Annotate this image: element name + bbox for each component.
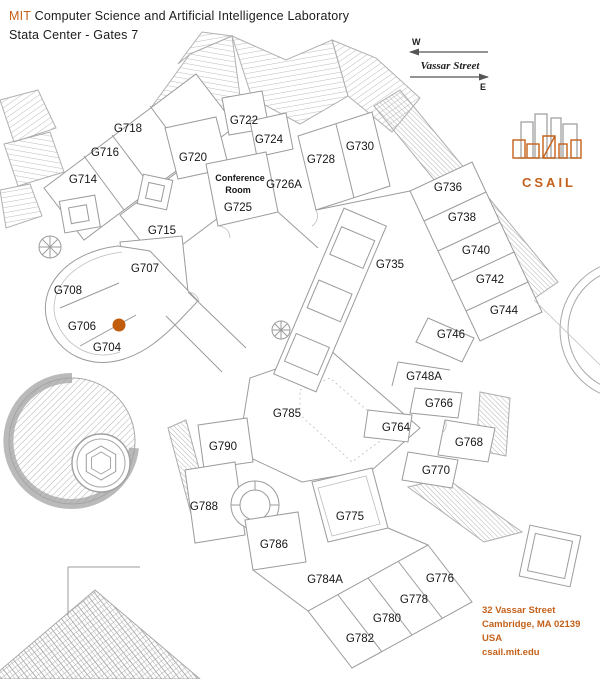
csail-wordmark: CSAIL	[501, 175, 597, 190]
header-subtitle: Stata Center - Gates 7	[9, 26, 349, 45]
room-label-g786: G786	[260, 539, 288, 551]
room-label-g788: G788	[190, 501, 218, 513]
room-label-g716: G716	[91, 147, 119, 159]
floor-plan: G718 G716 G714 G722 G724 G720 G728 G730 …	[0, 0, 600, 679]
east-arrowhead-icon	[479, 74, 489, 81]
room-label-g708: G708	[54, 285, 82, 297]
room-label-g724: G724	[255, 134, 284, 146]
room-label-g728: G728	[307, 154, 335, 166]
room-label-g775: G775	[336, 511, 364, 523]
csail-floor-map-page: G718 G716 G714 G722 G724 G720 G728 G730 …	[0, 0, 600, 679]
room-label-g738: G738	[448, 212, 476, 224]
room-label-g736: G736	[434, 182, 462, 194]
room-label-g785: G785	[273, 408, 301, 420]
pyramid-roof	[0, 590, 200, 679]
room-label-g730: G730	[346, 141, 374, 153]
room-label-g778: G778	[400, 594, 428, 606]
room-label-g735: G735	[376, 259, 404, 271]
room-label-g782: G782	[346, 633, 374, 645]
room-label-g770: G770	[422, 465, 450, 477]
room-label-g784a: G784A	[307, 574, 343, 586]
location-marker-dot	[113, 319, 126, 332]
room-label-g720: G720	[179, 152, 207, 164]
mit-brand: MIT	[9, 9, 31, 23]
csail-skyline-icon	[507, 110, 591, 168]
room-label-g726a: G726A	[266, 179, 302, 191]
room-label-g715: G715	[148, 225, 176, 237]
room-label-g768: G768	[455, 437, 483, 449]
room-label-g766: G766	[425, 398, 453, 410]
room-label-g780: G780	[373, 613, 401, 625]
west-label: W	[412, 37, 421, 47]
room-label-g790: G790	[209, 441, 237, 453]
conference-room-label-line2: Room	[225, 185, 251, 195]
room-label-g704: G704	[93, 342, 122, 354]
room-label-g746: G746	[437, 329, 465, 341]
conference-room-label-line1: Conference	[215, 173, 265, 183]
header-title-line: MIT Computer Science and Artificial Inte…	[9, 7, 349, 26]
vassar-street-compass: W Vassar Street E	[400, 31, 510, 95]
west-arrowhead-icon	[409, 49, 419, 56]
map-header: MIT Computer Science and Artificial Inte…	[9, 7, 349, 45]
address-block: 32 Vassar Street Cambridge, MA 02139 USA…	[482, 604, 580, 660]
address-line-2: Cambridge, MA 02139	[482, 618, 580, 632]
room-label-g707: G707	[131, 263, 159, 275]
room-label-g776: G776	[426, 573, 454, 585]
room-label-g740: G740	[462, 245, 490, 257]
csail-logo: CSAIL	[501, 110, 597, 190]
address-line-1: 32 Vassar Street	[482, 604, 580, 618]
room-label-g725: G725	[224, 202, 252, 214]
address-line-3: USA	[482, 632, 580, 646]
room-label-g722: G722	[230, 115, 258, 127]
room-label-g706: G706	[68, 321, 96, 333]
lab-title: Computer Science and Artificial Intellig…	[35, 9, 350, 23]
amphitheater-circle	[8, 378, 135, 504]
room-label-g714: G714	[69, 174, 98, 186]
room-label-g764: G764	[382, 422, 411, 434]
room-label-g718: G718	[114, 123, 142, 135]
address-line-4: csail.mit.edu	[482, 646, 580, 660]
east-label: E	[480, 82, 486, 92]
room-label-g744: G744	[490, 305, 519, 317]
room-label-g742: G742	[476, 274, 504, 286]
street-name: Vassar Street	[421, 60, 481, 72]
room-label-g748a: G748A	[406, 371, 442, 383]
